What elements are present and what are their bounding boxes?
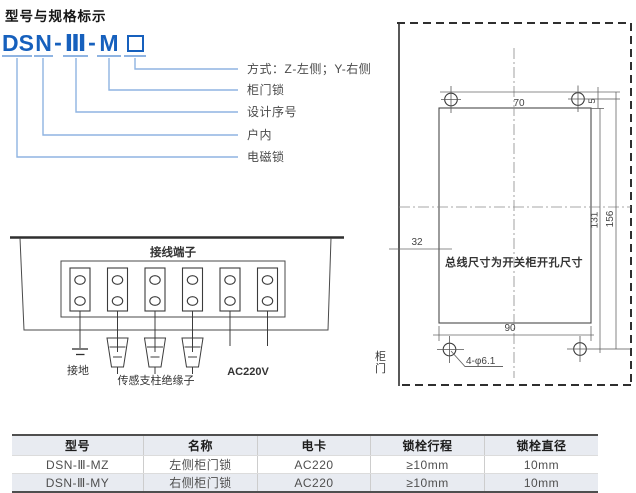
table-header-row: 型号 名称 电卡 锁栓行程 锁栓直径 [12,436,598,455]
terminal-units [70,268,278,311]
cell-model: DSN-Ⅲ-MZ [12,456,144,473]
table-row: DSN-Ⅲ-MZ 左侧柜门锁 AC220 ≥10mm 10mm [12,455,598,473]
cell-travel: ≥10mm [371,474,485,491]
code-segment-n: N [34,30,53,57]
cell-diameter: 10mm [485,474,598,491]
cell-voltage: AC220 [258,474,371,491]
header-diameter: 锁栓直径 [485,436,598,455]
ground-label: 接地 [67,364,89,377]
cell-model: DSN-Ⅲ-MY [12,474,144,491]
cutout-note: 总线尺寸为开关柜开孔尺寸 [445,255,583,269]
cell-name: 右侧柜门锁 [144,474,258,491]
header-voltage: 电卡 [258,436,371,455]
terminal-2 [108,268,128,311]
terminal-1 [70,268,90,311]
label-mode: 方式：Z-左侧；Y-右侧 [247,62,371,76]
dim-156: 156 [605,210,616,227]
label-indoor: 户内 [247,128,272,142]
code-leader-lines [0,57,260,165]
placeholder-box [127,35,144,52]
dim-5: 5 [587,98,598,103]
page-title: 型号与规格标示 [5,5,107,25]
terminal-strip-title: 接线端子 [150,245,196,259]
terminal-strip [61,261,285,317]
cutout-drawing: 70 5 131 156 32 90 4-φ6.1 总线尺寸为开关柜开孔尺寸 [368,15,636,397]
terminal-6 [258,268,278,311]
header-travel: 锁栓行程 [371,436,485,455]
code-segment-ds: DS [2,30,32,57]
code-segment-m: M [97,30,121,57]
hole-callout: 4-φ6.1 [466,356,496,367]
insulator-label: 传感支柱绝缘子 [118,373,195,387]
catalog-page: 型号与规格标示 DS N - Ⅲ - M 方式：Z-左侧；Y-右侧 柜门锁 设计… [0,0,636,493]
label-door-lock: 柜门锁 [247,83,285,97]
cell-travel: ≥10mm [371,456,485,473]
terminal-3 [145,268,165,311]
header-name: 名称 [144,436,258,455]
terminal-block-diagram: 接线端子 接地 传感支柱绝缘子 AC220V [6,230,356,388]
code-placeholder [124,30,146,57]
table-row: DSN-Ⅲ-MY 右侧柜门锁 AC220 ≥10mm 10mm [12,473,598,491]
cell-voltage: AC220 [258,456,371,473]
spec-table: 型号 名称 电卡 锁栓行程 锁栓直径 DSN-Ⅲ-MZ 左侧柜门锁 AC220 … [12,434,598,493]
cell-diameter: 10mm [485,456,598,473]
dim-90: 90 [504,323,516,334]
terminal-5 [220,268,240,311]
power-label: AC220V [227,366,269,378]
dim-70: 70 [513,98,525,109]
code-segment-iii: Ⅲ [63,30,88,57]
dim-131: 131 [590,211,601,228]
leader-door-lock [109,58,238,90]
cell-name: 左侧柜门锁 [144,456,258,473]
leader-magnet-lock [17,58,238,157]
header-model: 型号 [12,436,144,455]
hole-crosshairs [437,86,631,364]
terminal-4 [183,268,203,311]
door-label: 柜门 [374,351,387,375]
label-design-no: 设计序号 [247,105,297,119]
mounting-holes [443,93,586,356]
leader-mode [135,58,238,69]
cutout-rect [439,108,591,323]
leader-design-no [76,58,238,112]
dim-32: 32 [411,237,423,248]
ground-symbol [72,349,88,355]
label-magnet-lock: 电磁锁 [247,150,285,164]
